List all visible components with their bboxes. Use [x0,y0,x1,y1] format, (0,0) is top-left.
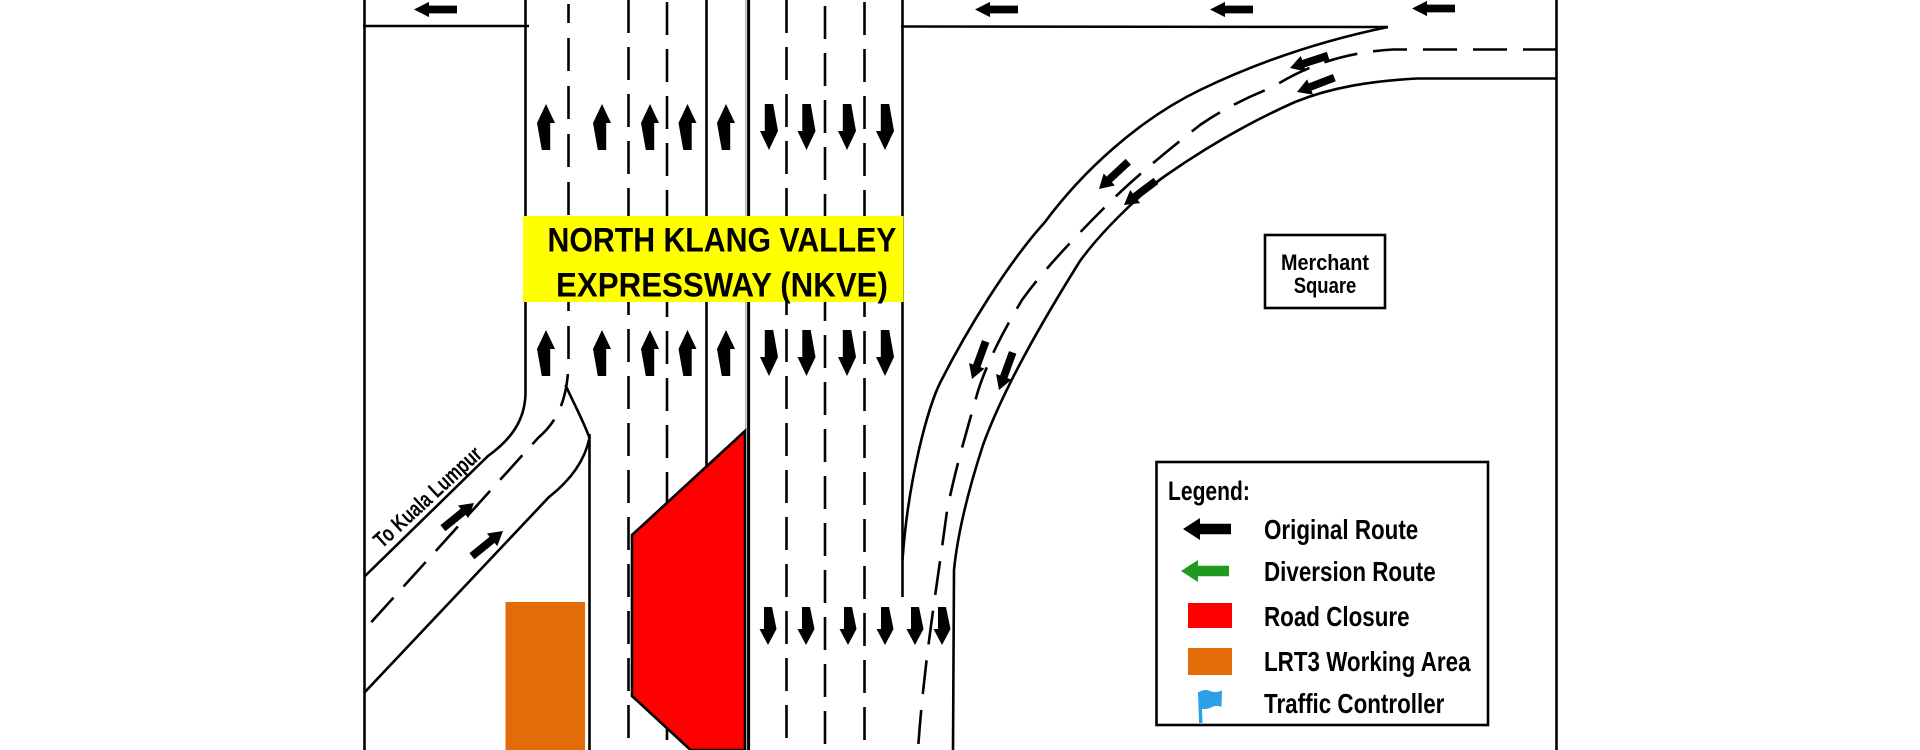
svg-text:Merchant: Merchant [1281,251,1369,275]
svg-text:Traffic Controller: Traffic Controller [1264,689,1445,720]
svg-text:NORTH KLANG VALLEY: NORTH KLANG VALLEY [548,221,897,259]
svg-text:Original Route: Original Route [1264,515,1418,546]
svg-text:EXPRESSWAY (NKVE): EXPRESSWAY (NKVE) [556,265,888,304]
svg-text:Square: Square [1294,275,1357,299]
svg-text:LRT3 Working Area: LRT3 Working Area [1264,647,1471,678]
svg-text:Legend:: Legend: [1168,477,1250,507]
svg-text:Diversion Route: Diversion Route [1264,557,1436,588]
svg-text:Road Closure: Road Closure [1264,602,1410,633]
